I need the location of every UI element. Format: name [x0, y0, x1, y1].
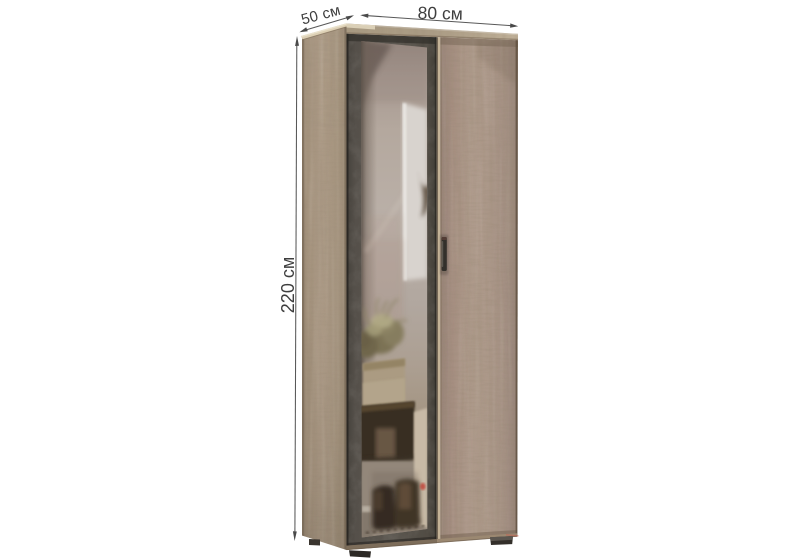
svg-text:220 см: 220 см: [278, 257, 298, 313]
svg-text:80 см: 80 см: [417, 3, 463, 24]
svg-text:50 см: 50 см: [299, 2, 342, 29]
